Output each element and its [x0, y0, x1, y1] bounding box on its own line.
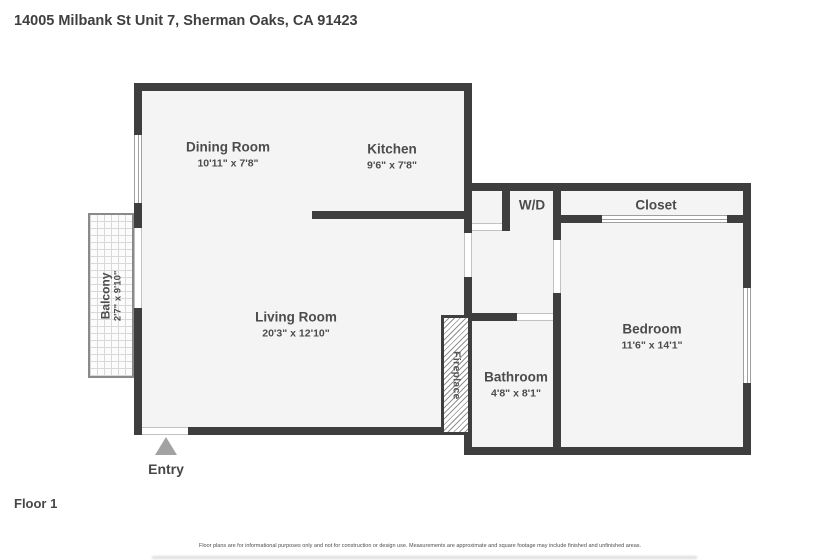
floorplan-page: 14005 Milbank St Unit 7, Sherman Oaks, C…: [0, 0, 839, 560]
bedroom-dimensions: 11'6" x 14'1": [621, 339, 682, 352]
wall-hall-upper: [464, 83, 472, 233]
wd-label: W/D: [519, 198, 545, 215]
bedroom-door-opening: [553, 240, 561, 293]
wall-kitchen-divider: [312, 211, 472, 219]
living-room-dimensions: 20'3" x 12'10": [255, 327, 337, 340]
entry-label: Entry: [148, 461, 184, 477]
fireplace-label: Fireplace: [451, 351, 462, 399]
wd-name: W/D: [519, 198, 545, 215]
bedroom-label: Bedroom 11'6" x 14'1": [621, 322, 682, 353]
hallway-opening: [464, 233, 472, 277]
wall-left-upper: [134, 83, 142, 135]
kitchen-label: Kitchen 9'6" x 7'8": [367, 142, 417, 173]
wall-right-lower: [743, 383, 751, 455]
wall-utility-divider: [502, 191, 510, 231]
closet-name: Closet: [635, 198, 676, 215]
closet-label: Closet: [635, 198, 676, 215]
balcony-door-opening: [134, 228, 142, 308]
entry-door-opening: [142, 427, 188, 435]
disclaimer-second-line-faint: [152, 556, 697, 559]
wall-left-lower: [134, 308, 142, 435]
wall-wing-bottom: [464, 447, 751, 455]
floor-label: Floor 1: [14, 496, 57, 511]
wall-closet-bottom-left: [561, 215, 602, 223]
wall-top: [134, 83, 472, 91]
disclaimer-text: Floor plans are for informational purpos…: [185, 543, 655, 550]
bathroom-label: Bathroom 4'8" x 8'1": [484, 370, 548, 401]
wall-bedroom-west: [553, 293, 561, 455]
wall-right-upper: [743, 183, 751, 288]
living-room-label: Living Room 20'3" x 12'10": [255, 310, 337, 341]
closet-sliding-door: [602, 215, 727, 223]
dining-room-name: Dining Room: [186, 140, 270, 157]
kitchen-dimensions: 9'6" x 7'8": [367, 159, 417, 172]
balcony-area: Balcony 2'7" x 9'10": [88, 213, 134, 378]
bathroom-name: Bathroom: [484, 370, 548, 387]
kitchen-name: Kitchen: [367, 142, 417, 159]
wall-left-mid: [134, 203, 142, 228]
bedroom-window: [743, 288, 751, 383]
balcony-label: Balcony 2'7" x 9'10": [98, 270, 124, 321]
dining-room-dimensions: 10'11" x 7'8": [186, 157, 270, 170]
utility-door-opening: [472, 223, 502, 231]
living-room-name: Living Room: [255, 310, 337, 327]
wall-wd-closet-divider: [553, 183, 561, 240]
dining-room-label: Dining Room 10'11" x 7'8": [186, 140, 270, 171]
fireplace-area: Fireplace: [441, 315, 471, 435]
dining-window: [134, 135, 142, 203]
wall-closet-bottom-right: [727, 215, 743, 223]
wall-bathroom-top: [472, 313, 517, 321]
bathroom-door-opening: [517, 313, 553, 321]
balcony-name: Balcony: [98, 270, 112, 321]
bedroom-name: Bedroom: [621, 322, 682, 339]
floor-plan: Balcony 2'7" x 9'10": [0, 0, 839, 560]
wall-wing-top: [464, 183, 751, 191]
bathroom-dimensions: 4'8" x 8'1": [484, 387, 548, 400]
main-floor-area: [134, 83, 472, 435]
balcony-dimensions: 2'7" x 9'10": [113, 270, 124, 321]
entry-arrow-icon: [155, 437, 177, 455]
